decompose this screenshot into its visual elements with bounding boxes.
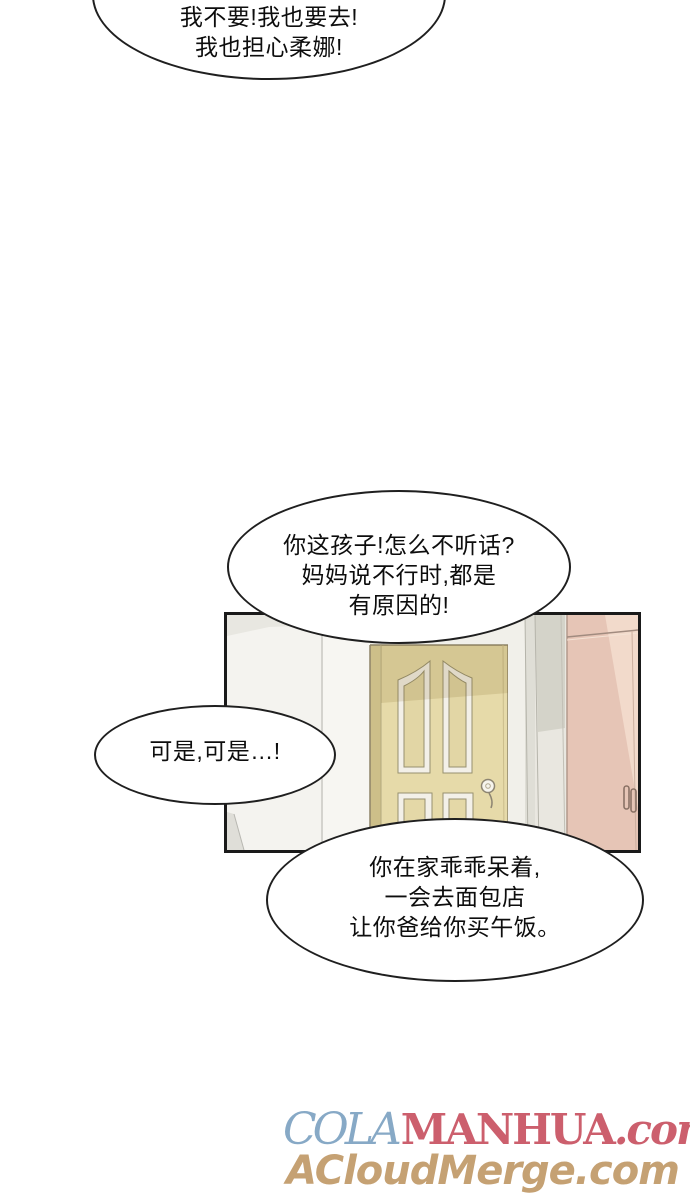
door-knob (482, 780, 495, 793)
speech-line: 一会去面包店 (385, 882, 526, 912)
speech-bubble-middle: 你这孩子!怎么不听话? 妈妈说不行时,都是 有原因的! (227, 490, 571, 644)
speech-line: 我也担心柔娜! (195, 32, 343, 62)
speech-line: 有原因的! (349, 590, 450, 620)
speech-bubble-top: 我不要!我也要去! 我也担心柔娜! (92, 0, 446, 80)
speech-line: 妈妈说不行时,都是 (302, 560, 497, 590)
speech-bubble-bottom: 你在家乖乖呆着, 一会去面包店 让你爸给你买午饭。 (266, 818, 644, 982)
gray-wall (508, 615, 567, 850)
watermark-acloudmerge: ACloudMerge.com (286, 1148, 679, 1194)
speech-line: 可是,可是…! (149, 736, 280, 766)
door (370, 615, 508, 850)
speech-line: 让你爸给你买午饭。 (349, 912, 561, 942)
watermark-manhua-text: MANHUA (401, 1105, 614, 1154)
speech-line: 你这孩子!怎么不听话? (283, 530, 515, 560)
comic-page: 我不要!我也要去! 我也担心柔娜! 你这孩子!怎么不听话? 妈妈说不行时,都是 … (0, 0, 690, 1200)
wardrobe (567, 615, 638, 850)
speech-line: 你在家乖乖呆着, (369, 852, 540, 882)
speech-line: 我不要!我也要去! (180, 2, 358, 32)
watermark-com-text: .com (614, 1105, 690, 1154)
speech-bubble-left: 可是,可是…! (94, 705, 336, 805)
